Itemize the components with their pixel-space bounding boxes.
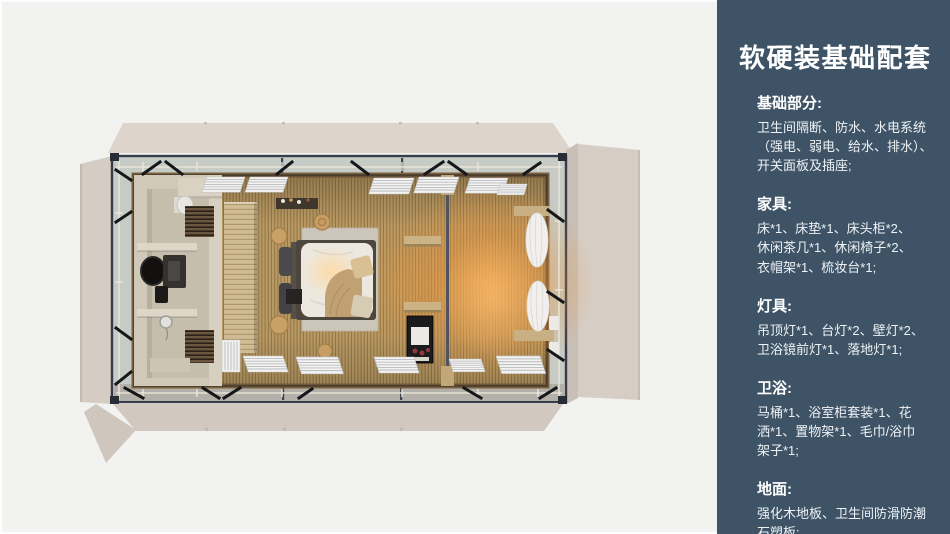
info-sidebar: 软硬装基础配套 基础部分: 卫生间隔断、防水、水电系统 （强电、弱电、给水、排水… [717, 0, 950, 534]
section-furniture: 家具: 床*1、床垫*1、床头柜*2、 休闲茶几*1、休闲椅子*2、 衣帽架*1… [757, 196, 936, 276]
section-heading: 基础部分: [757, 95, 936, 114]
section-body: 强化木地板、卫生间防滑防潮 石塑板; [757, 504, 936, 534]
sidebar-title: 软硬装基础配套 [739, 44, 940, 74]
display-cabinet [407, 316, 433, 363]
sidebar-sections: 基础部分: 卫生间隔断、防水、水电系统 （强电、弱电、给水、排水）、 开关面板及… [717, 95, 950, 534]
side-stool [271, 228, 287, 244]
section-body: 卫生间隔断、防水、水电系统 （强电、弱电、给水、排水）、 开关面板及插座; [757, 118, 936, 176]
cushion [350, 294, 373, 318]
section-body: 吊顶灯*1、台灯*2、壁灯*2、 卫浴镜前灯*1、落地灯*1; [757, 321, 936, 359]
towel-rack [185, 206, 214, 237]
section-bathroom: 卫浴: 马桶*1、浴室柜套装*1、花 洒*1、置物架*1、毛巾/浴巾 架子*1; [757, 380, 936, 460]
pillow [279, 247, 292, 276]
section-lighting: 灯具: 吊顶灯*1、台灯*2、壁灯*2、 卫浴镜前灯*1、落地灯*1; [757, 298, 936, 359]
section-heading: 地面: [757, 481, 936, 500]
section-heading: 家具: [757, 196, 936, 215]
section-body: 床*1、床垫*1、床头柜*2、 休闲茶几*1、休闲椅子*2、 衣帽架*1、梳妆台… [757, 219, 936, 277]
floorplan-render [0, 0, 717, 534]
section-flooring: 地面: 强化木地板、卫生间防滑防潮 石塑板; [757, 481, 936, 534]
section-heading: 灯具: [757, 298, 936, 317]
section-heading: 卫浴: [757, 380, 936, 399]
wardrobe [222, 202, 257, 372]
woven-decor [314, 214, 330, 230]
slide: 软硬装基础配套 基础部分: 卫生间隔断、防水、水电系统 （强电、弱电、给水、排水… [0, 0, 950, 534]
section-body: 马桶*1、浴室柜套装*1、花 洒*1、置物架*1、毛巾/浴巾 架子*1; [757, 403, 936, 461]
bedside-caddy [286, 289, 302, 304]
section-basics: 基础部分: 卫生间隔断、防水、水电系统 （强电、弱电、给水、排水）、 开关面板及… [757, 95, 936, 175]
bathroom [134, 175, 222, 386]
woven-decor [318, 344, 332, 358]
floorplan-area [0, 0, 717, 534]
side-stool [270, 316, 288, 334]
